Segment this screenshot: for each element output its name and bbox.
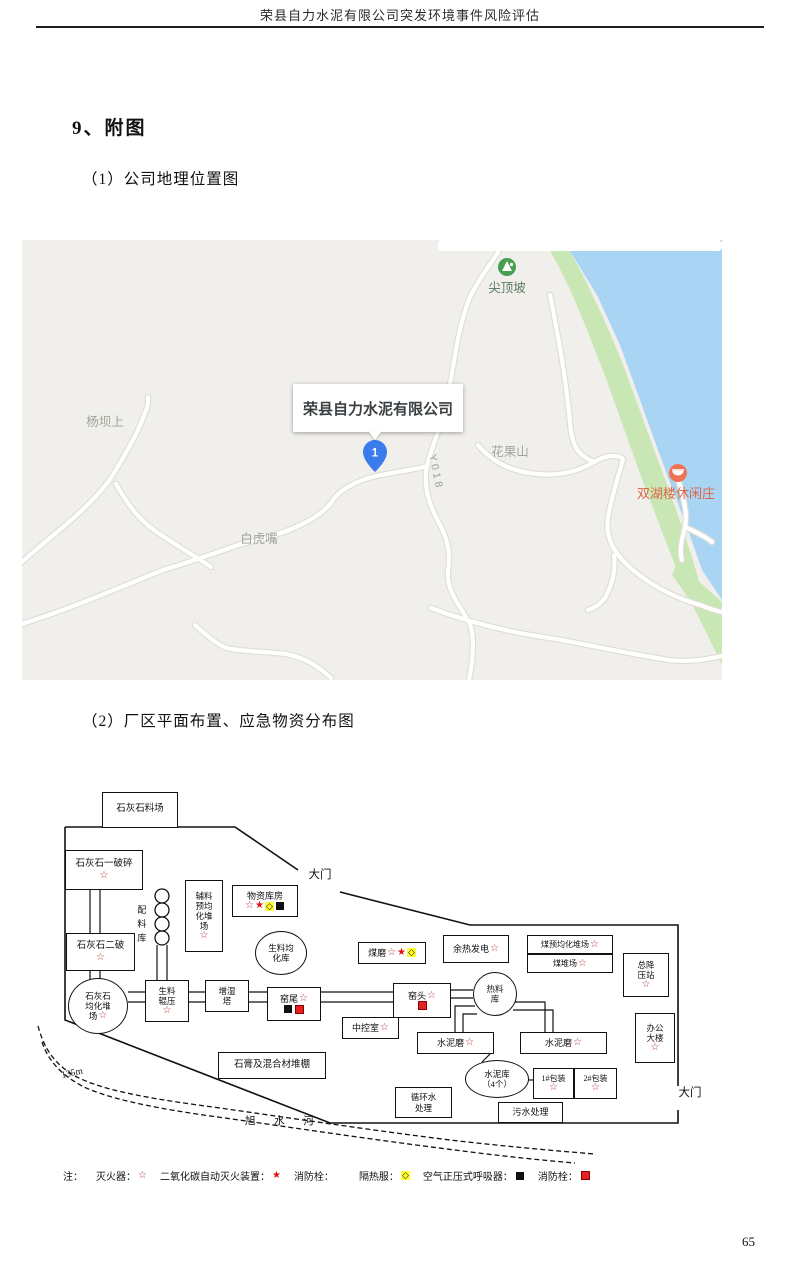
mountain-label: 花果山 — [491, 444, 529, 459]
extinguisher-star-icon: ☆ — [98, 1011, 107, 1021]
legend-item: 二氧化碳自动灭火装置：★ — [160, 1168, 281, 1183]
packing-1: 1#包装☆ — [533, 1068, 574, 1099]
header-rule — [36, 26, 764, 28]
legend-item-label: 消防栓： — [294, 1168, 334, 1183]
central-control-room: 中控室☆ — [342, 1017, 399, 1039]
extinguisher-star-icon: ☆ — [651, 1043, 660, 1053]
gate-top: 大门 — [298, 868, 342, 884]
legend-item: 消防栓： — [538, 1168, 591, 1183]
legend-item-label: 隔热服： — [359, 1168, 399, 1183]
co2-autoext-star-icon: ★ — [255, 901, 264, 911]
limestone-yard: 石灰石料场 — [102, 792, 178, 828]
location-map: 尖顶坡 双湖楼休闲庄 花果山 杨坝上 白虎嘴 Y018 1 荣县自力水泥有限公司 — [22, 240, 722, 680]
section-title: 9、附图 — [72, 113, 147, 140]
limestone-crusher-1: 石灰石一破碎☆ — [65, 850, 143, 890]
aux-preblending-yard: 辅料预均化堆场☆ — [185, 880, 223, 952]
extinguisher-star-icon: ☆ — [427, 991, 436, 1001]
legend-item-label: 灭火器： — [96, 1168, 136, 1183]
peak-poi-icon — [498, 258, 516, 276]
hydrant-square-icon — [295, 1005, 304, 1014]
extinguisher-star-icon: ☆ — [642, 980, 651, 990]
extinguisher-star-icon: ☆ — [200, 931, 209, 941]
legend-item: 隔热服：◇ — [359, 1168, 410, 1183]
kiln-head: 窑头☆ — [393, 983, 451, 1018]
plant-layout-diagram: 135m 旭 水 河 石灰石料场石灰石一破碎☆石灰石二破☆石灰石均化堆场☆配料库… — [30, 780, 770, 1200]
peak-label: 尖顶坡 — [488, 281, 526, 295]
map-marker-pin: 1 — [363, 440, 387, 472]
map-top-overlay — [438, 240, 722, 251]
resort-poi-icon — [669, 464, 687, 482]
heat-suit-diamond-icon: ◇ — [407, 948, 416, 957]
extinguisher-star-icon: ☆ — [96, 953, 105, 963]
co2-autoext-star-icon: ★ — [272, 1171, 281, 1181]
page-number: 65 — [742, 1234, 755, 1250]
gate-right: 大门 — [668, 1086, 712, 1102]
extinguisher-star-icon: ☆ — [465, 1038, 474, 1048]
cement-silos: 水泥库（4个） — [465, 1060, 529, 1098]
document-page: 荣县自力水泥有限公司突发环境事件风险评估 9、附图 （1）公司地理位置图 （2）… — [0, 0, 800, 1276]
coal-mill: 煤磨☆★◇ — [358, 942, 426, 964]
figure2-caption: （2）厂区平面布置、应急物资分布图 — [82, 709, 355, 731]
hydrant-square-icon — [418, 1001, 427, 1010]
office-building: 办公大楼☆ — [635, 1013, 675, 1063]
figure1-caption: （1）公司地理位置图 — [82, 167, 239, 189]
limestone-crusher-2: 石灰石二破☆ — [66, 933, 135, 971]
raw-meal-roller-press: 生料辊压☆ — [145, 980, 189, 1022]
raw-meal-silo: 生料均化库 — [255, 931, 307, 975]
company-label-box: 荣县自力水泥有限公司 — [293, 384, 463, 432]
limestone-blending-yard: 石灰石均化堆场☆ — [68, 978, 128, 1034]
south-village-label: 白虎嘴 — [240, 531, 278, 546]
marker-number: 1 — [372, 448, 379, 460]
extinguisher-star-icon: ☆ — [380, 1023, 389, 1033]
legend-item: 灭火器：☆ — [96, 1168, 147, 1183]
cement-mill-2: 水泥磨☆ — [520, 1032, 607, 1054]
sewage-treatment: 污水处理 — [498, 1102, 563, 1123]
kiln-tail: 窑尾☆ — [267, 987, 321, 1021]
coal-yard: 煤堆场☆ — [527, 954, 613, 973]
extinguisher-star-icon: ☆ — [490, 944, 499, 954]
map-canvas: 尖顶坡 双湖楼休闲庄 花果山 杨坝上 白虎嘴 Y018 1 — [22, 240, 722, 680]
gypsum-shed: 石膏及混合材堆棚 — [218, 1052, 326, 1079]
legend-item-label: 空气正压式呼吸器： — [423, 1168, 513, 1183]
heat-suit-diamond-icon: ◇ — [265, 902, 274, 911]
legend-note: 注： — [63, 1168, 83, 1183]
west-village-label: 杨坝上 — [86, 414, 124, 429]
extinguisher-star-icon: ☆ — [299, 994, 308, 1004]
hydrant-square-icon — [581, 1171, 590, 1180]
co2-autoext-star-icon: ★ — [397, 948, 406, 958]
legend-item-label: 二氧化碳自动灭火装置： — [160, 1168, 270, 1183]
legend-item-label: 消防栓： — [538, 1168, 578, 1183]
breathing-apparatus-square-icon — [284, 1005, 292, 1013]
extinguisher-star-icon: ☆ — [573, 1038, 582, 1048]
humidifier-tower: 增湿塔 — [205, 980, 249, 1012]
extinguisher-star-icon: ☆ — [245, 901, 254, 911]
document-header-title: 荣县自力水泥有限公司突发环境事件风险评估 — [0, 5, 800, 24]
breathing-apparatus-square-icon — [516, 1172, 524, 1180]
extinguisher-star-icon: ☆ — [138, 1171, 147, 1181]
diagram-legend: 注： 灭火器：☆二氧化碳自动灭火装置：★消防栓：隔热服：◇空气正压式呼吸器：消防… — [63, 1168, 763, 1183]
packing-2: 2#包装☆ — [574, 1068, 617, 1099]
waste-heat-power: 余热发电☆ — [443, 935, 509, 963]
company-label-pointer — [369, 432, 381, 440]
batching-silo-circles — [155, 889, 169, 945]
coal-preblending-yard: 煤预均化堆场☆ — [527, 935, 613, 954]
extinguisher-star-icon: ☆ — [387, 948, 396, 958]
legend-item: 消防栓： — [294, 1168, 346, 1183]
cement-mill-1: 水泥磨☆ — [417, 1032, 494, 1054]
main-substation: 总降压站☆ — [623, 953, 669, 997]
extinguisher-star-icon: ☆ — [163, 1006, 172, 1016]
batching-silo: 配料库 — [134, 898, 148, 954]
material-warehouse: 物资库房☆★◇ — [232, 885, 298, 917]
heat-suit-diamond-icon: ◇ — [401, 1171, 410, 1180]
resort-label: 双湖楼休闲庄 — [637, 486, 715, 501]
extinguisher-star-icon: ☆ — [578, 959, 587, 969]
legend-item: 空气正压式呼吸器： — [423, 1168, 525, 1183]
circulating-water: 循环水处理 — [395, 1087, 452, 1118]
breathing-apparatus-square-icon — [276, 902, 284, 910]
hot-material-silo: 热料库 — [473, 972, 517, 1016]
extinguisher-star-icon: ☆ — [549, 1083, 558, 1093]
river-name-label: 旭 水 河 — [245, 1115, 322, 1127]
extinguisher-star-icon: ☆ — [100, 871, 109, 881]
extinguisher-star-icon: ☆ — [590, 940, 599, 950]
extinguisher-star-icon: ☆ — [591, 1083, 600, 1093]
